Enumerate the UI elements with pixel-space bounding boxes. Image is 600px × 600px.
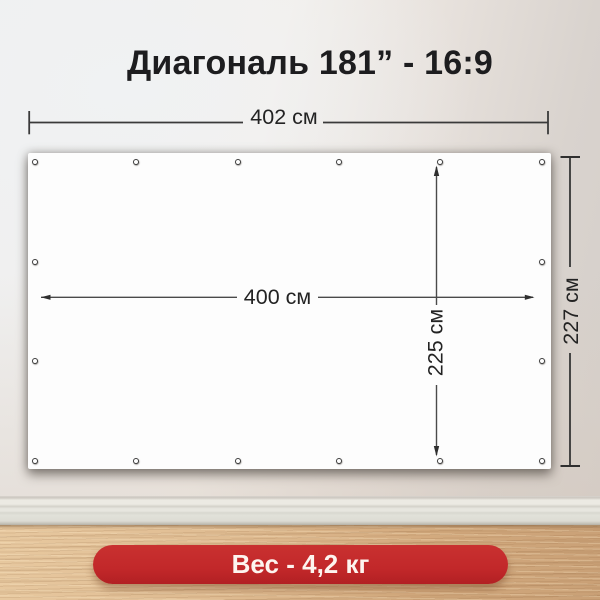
- svg-text:400 см: 400 см: [244, 285, 311, 309]
- svg-text:227 см: 227 см: [559, 277, 583, 344]
- svg-text:402 см: 402 см: [250, 105, 317, 129]
- svg-text:225 см: 225 см: [424, 309, 448, 376]
